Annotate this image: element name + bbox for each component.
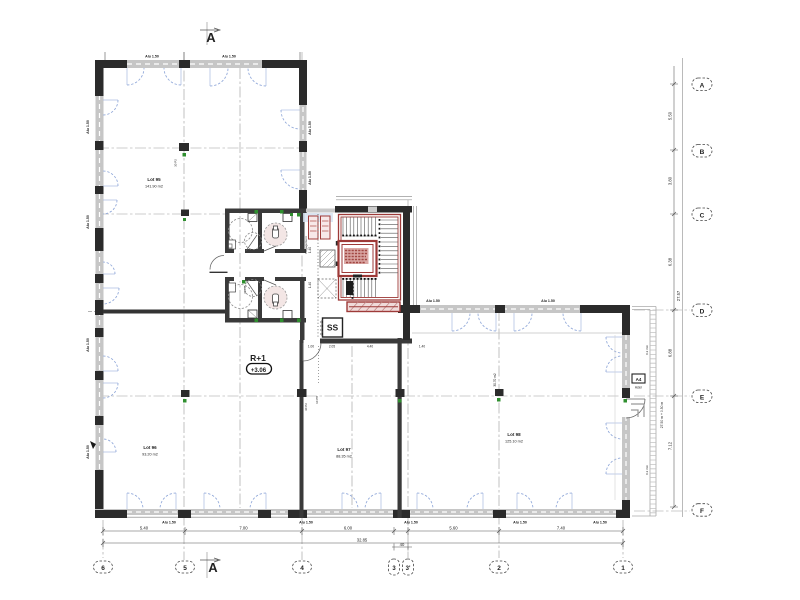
svg-text:5: 5 [183, 565, 187, 572]
svg-text:5.50: 5.50 [668, 111, 673, 120]
svg-text:0.2 min: 0.2 min [645, 345, 649, 355]
svg-text:1.40: 1.40 [308, 282, 312, 288]
svg-text:Alu 1.50: Alu 1.50 [593, 521, 607, 525]
svg-text:141.90 m2: 141.90 m2 [145, 185, 163, 189]
svg-text:10 P8: 10 P8 [315, 396, 319, 404]
svg-text:5.40: 5.40 [140, 526, 149, 531]
svg-text:7.12: 7.12 [668, 441, 673, 450]
svg-text:1.40: 1.40 [419, 345, 425, 349]
svg-text:Lot 98: Lot 98 [507, 432, 521, 437]
svg-text:+3.06: +3.06 [251, 368, 267, 374]
svg-text:Alu 1.50: Alu 1.50 [145, 55, 159, 59]
svg-text:Alu 1.50: Alu 1.50 [308, 171, 312, 185]
svg-text:R+1: R+1 [250, 353, 266, 363]
svg-text:30 P2: 30 P2 [304, 403, 308, 411]
svg-text:Alu 1.50: Alu 1.50 [299, 521, 313, 525]
svg-text:Alu 1.50: Alu 1.50 [513, 521, 527, 525]
svg-text:Alu 1.50: Alu 1.50 [404, 521, 418, 525]
svg-text:Alu 1.50: Alu 1.50 [86, 445, 90, 459]
svg-text:1.40: 1.40 [308, 247, 312, 253]
svg-text:30 P2: 30 P2 [243, 286, 247, 294]
svg-text:27.57: 27.57 [676, 290, 681, 301]
svg-text:1: 1 [621, 565, 625, 572]
svg-text:Acier: Acier [635, 386, 643, 390]
svg-text:Lot 97: Lot 97 [337, 447, 351, 452]
svg-text:Alu 1.50: Alu 1.50 [222, 55, 236, 59]
svg-text:0.2 min: 0.2 min [645, 465, 649, 475]
svg-text:32.85: 32.85 [357, 538, 368, 543]
svg-text:A: A [700, 83, 705, 90]
svg-text:Alu 1.50: Alu 1.50 [426, 299, 440, 303]
svg-text:6: 6 [101, 565, 105, 572]
svg-text:6.38: 6.38 [668, 257, 673, 266]
svg-text:7.00: 7.00 [239, 526, 248, 531]
svg-text:30.70 m2: 30.70 m2 [493, 373, 497, 387]
svg-text:2: 2 [497, 565, 501, 572]
svg-text:4: 4 [300, 565, 304, 572]
svg-text:88.35 m2: 88.35 m2 [336, 455, 352, 459]
svg-text:Alu 1.50: Alu 1.50 [86, 215, 90, 229]
svg-text:SS: SS [327, 323, 339, 333]
svg-text:3': 3' [406, 566, 411, 572]
svg-text:4.40: 4.40 [367, 345, 373, 349]
svg-text:Alu 1.50: Alu 1.50 [86, 120, 90, 134]
svg-text:Alu 1.50: Alu 1.50 [86, 338, 90, 352]
svg-text:40: 40 [400, 542, 405, 547]
svg-text:27.50 m + 0.50 m: 27.50 m + 0.50 m [660, 402, 664, 429]
svg-text:1.00: 1.00 [308, 345, 314, 349]
svg-text:Alu 1.50: Alu 1.50 [541, 299, 555, 303]
svg-text:A4: A4 [636, 377, 642, 382]
svg-text:93.20 m2: 93.20 m2 [142, 453, 158, 457]
svg-text:30 P2: 30 P2 [174, 159, 178, 167]
svg-text:Lot 95: Lot 95 [147, 177, 161, 182]
svg-text:D: D [700, 309, 705, 316]
svg-text:Lot 96: Lot 96 [143, 445, 157, 450]
svg-text:2.05: 2.05 [329, 345, 335, 349]
svg-text:C: C [700, 213, 705, 220]
svg-text:Alu 1.50: Alu 1.50 [162, 521, 176, 525]
svg-text:A: A [206, 30, 216, 45]
svg-text:B: B [700, 149, 705, 156]
svg-text:125.10 m2: 125.10 m2 [505, 440, 523, 444]
svg-text:A: A [208, 560, 218, 575]
svg-text:6.88: 6.88 [668, 348, 673, 357]
svg-text:3.80: 3.80 [668, 176, 673, 185]
svg-text:Alu 1.50: Alu 1.50 [308, 121, 312, 135]
svg-text:E: E [700, 395, 705, 402]
svg-text:7.40: 7.40 [557, 526, 566, 531]
svg-text:5.60: 5.60 [449, 526, 458, 531]
svg-text:F: F [700, 508, 704, 515]
svg-text:6.00: 6.00 [344, 526, 353, 531]
